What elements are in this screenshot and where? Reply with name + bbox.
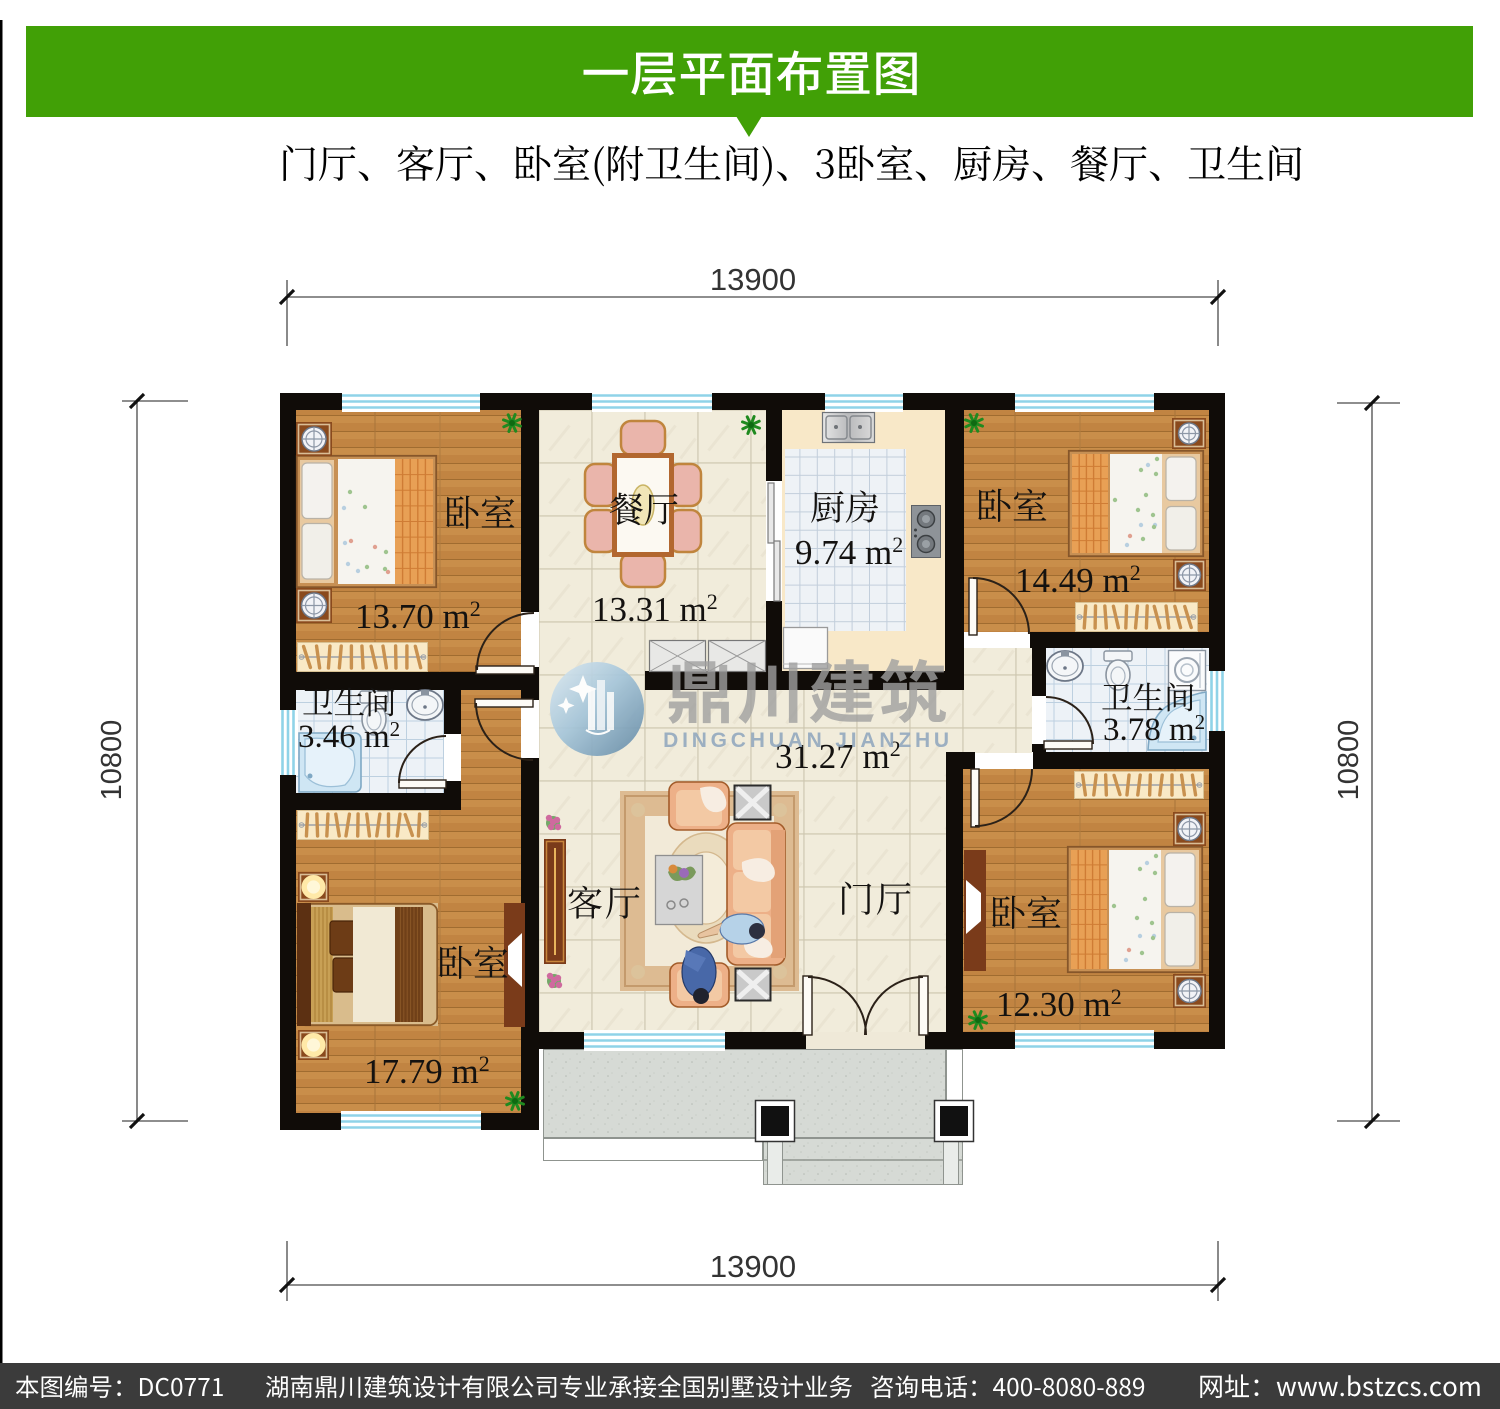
- svg-text:3.78 m2: 3.78 m2: [1103, 710, 1205, 748]
- svg-text:10800: 10800: [96, 720, 128, 801]
- svg-text:14.49 m2: 14.49 m2: [1015, 560, 1141, 600]
- svg-text:17.79 m2: 17.79 m2: [364, 1051, 490, 1091]
- svg-text:13.70 m2: 13.70 m2: [355, 596, 481, 636]
- svg-text:12.30 m2: 12.30 m2: [996, 984, 1122, 1024]
- svg-text:13900: 13900: [710, 262, 796, 297]
- svg-text:13.31 m2: 13.31 m2: [592, 589, 718, 629]
- svg-text:9.74 m2: 9.74 m2: [795, 532, 903, 572]
- svg-text:3.46 m2: 3.46 m2: [298, 717, 400, 755]
- svg-text:13900: 13900: [710, 1249, 796, 1284]
- svg-text:10800: 10800: [1333, 720, 1365, 801]
- svg-text:DINGCHUAN JIANZHU: DINGCHUAN JIANZHU: [663, 729, 953, 752]
